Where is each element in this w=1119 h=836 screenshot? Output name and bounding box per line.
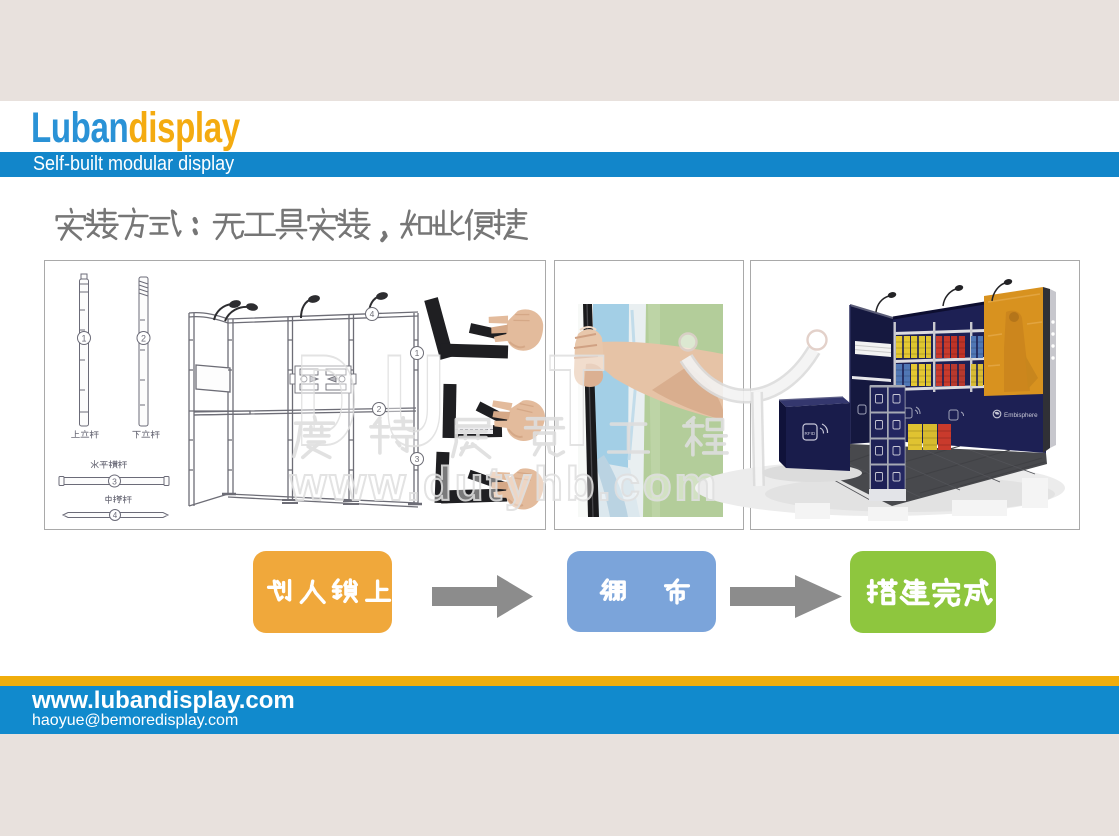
svg-text:RFID: RFID bbox=[805, 431, 816, 436]
svg-text:www.dutyhb.com: www.dutyhb.com bbox=[289, 457, 719, 510]
svg-text:U: U bbox=[383, 328, 445, 473]
svg-text:4: 4 bbox=[370, 309, 375, 319]
svg-text:2: 2 bbox=[141, 334, 146, 344]
svg-text:D: D bbox=[296, 328, 358, 473]
svg-text:Embisphere: Embisphere bbox=[1004, 412, 1038, 419]
svg-text:4: 4 bbox=[113, 511, 118, 520]
svg-text:1: 1 bbox=[81, 334, 86, 344]
svg-text:2: 2 bbox=[377, 404, 382, 414]
svg-text:3: 3 bbox=[112, 476, 117, 486]
svg-text:T: T bbox=[549, 327, 605, 473]
